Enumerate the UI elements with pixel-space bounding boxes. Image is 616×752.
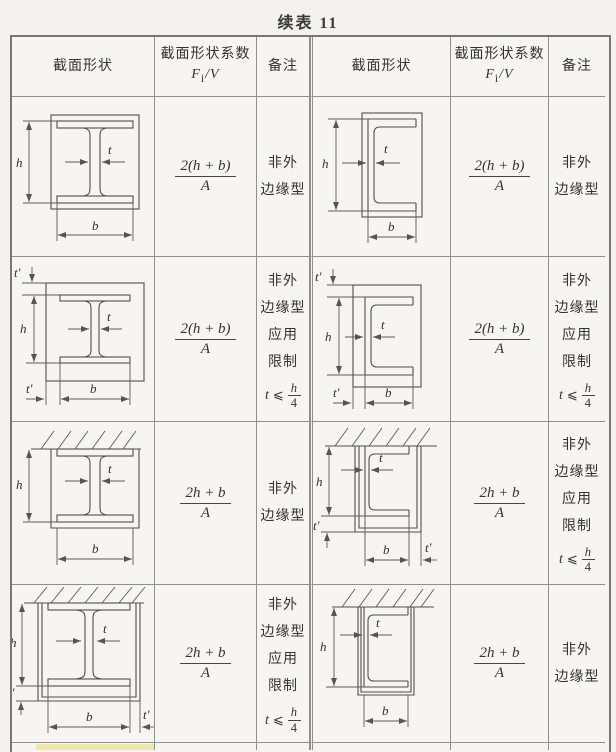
dim-label-b: b	[388, 219, 395, 234]
diagram-r3-left-i-beam-ceiling: h t b	[12, 422, 155, 585]
header-coefficient-right: 截面形状系数 Fi/V	[451, 37, 549, 97]
next-row-sliver	[451, 743, 549, 750]
dim-label-t-prime: t′	[26, 381, 33, 396]
dim-label-t: t	[376, 615, 380, 630]
note-r3-right: 非外 边缘型 应用 限制 t ⩽ h4	[549, 422, 605, 585]
diagram-r1-left-i-beam-box: h t b	[12, 97, 155, 257]
note-r2-left: 非外 边缘型 应用 限制 t ⩽ h4	[257, 257, 310, 422]
dim-label-t: t	[384, 141, 388, 156]
dim-label-t: t	[379, 450, 383, 465]
dim-label-b: b	[90, 381, 97, 396]
diagram-r3-right-channel-ceiling-clad: h t t′ b t′	[310, 422, 451, 585]
dim-label-h: h	[20, 321, 27, 336]
dim-label-t-prime: t′	[313, 518, 320, 533]
note-r1-left: 非外 边缘型	[257, 97, 310, 257]
limit-formula: t ⩽ h4	[261, 705, 306, 735]
dim-label-t-prime: t′	[12, 685, 15, 700]
next-row-sliver	[257, 743, 310, 750]
dim-label-h: h	[322, 156, 329, 171]
next-row-sliver	[12, 743, 155, 750]
formula-r3-left: 2h + b A	[155, 422, 257, 585]
diagram-r4-left-i-beam-ceiling-clad: h t t′ b t′	[12, 585, 155, 743]
formula-fraction: 2(h + b) A	[175, 158, 235, 195]
dim-label-t-prime: t′	[143, 707, 150, 722]
formula-fraction: 2(h + b) A	[469, 321, 529, 358]
dim-label-b: b	[385, 385, 392, 400]
formula-fraction: 2h + b A	[180, 645, 230, 682]
header-coefficient-left: 截面形状系数 Fi/V	[155, 37, 257, 97]
section-coefficient-table: 截面形状 截面形状系数 Fi/V 备注 截面形状 截面形状系数 Fi/V 备注 …	[10, 35, 611, 752]
dim-label-h: h	[320, 639, 327, 654]
formula-fraction: 2h + b A	[180, 485, 230, 522]
formula-fraction: 2(h + b) A	[175, 321, 235, 358]
limit-formula: t ⩽ h4	[261, 381, 306, 411]
formula-r1-left: 2(h + b) A	[155, 97, 257, 257]
dim-label-h: h	[16, 477, 23, 492]
diagram-r2-right-channel-clad: t′ h t t′ b	[310, 257, 451, 422]
limit-formula: t ⩽ h4	[555, 545, 600, 575]
note-r4-left: 非外 边缘型 应用 限制 t ⩽ h4	[257, 585, 310, 743]
dim-label-b: b	[86, 709, 93, 724]
dim-label-t: t	[381, 317, 385, 332]
page-title: 续表 11	[0, 0, 616, 33]
header-note-left: 备注	[257, 37, 310, 97]
dim-label-h: h	[316, 474, 323, 489]
formula-r1-right: 2(h + b) A	[451, 97, 549, 257]
note-r1-right: 非外 边缘型	[549, 97, 605, 257]
dim-label-b: b	[382, 703, 389, 718]
dim-label-h: h	[16, 155, 23, 170]
formula-r4-right: 2h + b A	[451, 585, 549, 743]
diagram-r4-right-channel-ceiling: h t b	[310, 585, 451, 743]
dim-label-t-prime: t′	[14, 265, 21, 280]
diagram-r1-right-channel-box: h t b	[310, 97, 451, 257]
coefficient-symbol: Fi/V	[191, 65, 219, 89]
coefficient-symbol: Fi/V	[485, 65, 513, 89]
dim-label-b: b	[383, 542, 390, 557]
dim-label-h: h	[12, 635, 17, 650]
header-shape-left: 截面形状	[12, 37, 155, 97]
header-shape-right: 截面形状	[310, 37, 451, 97]
formula-r3-right: 2h + b A	[451, 422, 549, 585]
dim-label-t-prime: t′	[425, 540, 432, 555]
dim-label-t-prime: t′	[333, 385, 340, 400]
note-r3-left: 非外 边缘型	[257, 422, 310, 585]
note-r4-right: 非外 边缘型	[549, 585, 605, 743]
limit-formula: t ⩽ h4	[555, 381, 600, 411]
dim-label-t: t	[108, 461, 112, 476]
diagram-r2-left-i-beam-clad: t′ h t t′ b	[12, 257, 155, 422]
dim-label-b: b	[92, 541, 99, 556]
dim-label-b: b	[92, 218, 99, 233]
dim-label-t: t	[108, 142, 112, 157]
formula-r2-right: 2(h + b) A	[451, 257, 549, 422]
dim-label-t: t	[103, 621, 107, 636]
dim-label-h: h	[325, 329, 332, 344]
next-row-sliver	[155, 743, 257, 750]
formula-fraction: 2h + b A	[474, 485, 524, 522]
formula-fraction: 2h + b A	[474, 645, 524, 682]
note-r2-right: 非外 边缘型 应用 限制 t ⩽ h4	[549, 257, 605, 422]
dim-label-t-prime: t′	[315, 269, 322, 284]
next-row-sliver	[310, 743, 451, 750]
formula-fraction: 2(h + b) A	[469, 158, 529, 195]
formula-r2-left: 2(h + b) A	[155, 257, 257, 422]
dim-label-t: t	[107, 309, 111, 324]
formula-r4-left: 2h + b A	[155, 585, 257, 743]
highlight-strip	[36, 744, 155, 750]
header-note-right: 备注	[549, 37, 605, 97]
next-row-sliver	[549, 743, 605, 750]
